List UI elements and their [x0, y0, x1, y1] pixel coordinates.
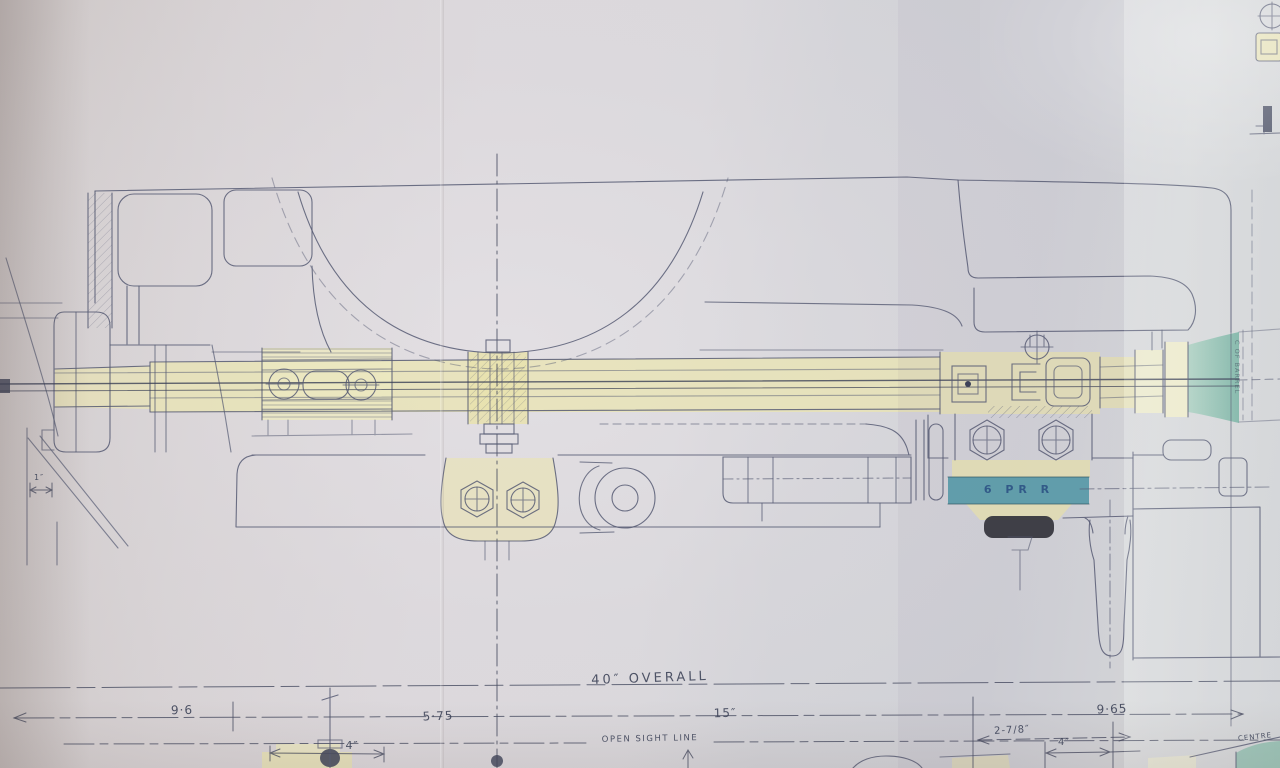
breech-hex-bolts	[970, 420, 1073, 460]
bottom-right-brass-1	[952, 755, 1010, 768]
barrel-step-1	[1100, 357, 1135, 408]
dim-4in-left-label: 4″	[345, 740, 358, 751]
dim-1in-label: 1″	[34, 474, 44, 482]
breech-hatch-strip	[988, 406, 1092, 418]
dim-seg3-label: 15″	[714, 707, 737, 719]
blueprint-photo: 40″ OVERALL 9·6 5·75 15″ 9·65 OPEN SIGHT…	[0, 0, 1280, 768]
dim-seg4-label: 9·65	[1096, 702, 1127, 715]
dim-4in-right-label: 4″	[1058, 738, 1070, 748]
dim-overall-label: 40″ OVERALL	[591, 670, 709, 687]
dim-seg2-label: 5·75	[422, 709, 453, 722]
dimension-lines	[0, 483, 1280, 768]
left-column-hatch	[88, 193, 112, 328]
pedestal-brass-band	[952, 460, 1090, 477]
blueprint-drawing	[0, 0, 1280, 768]
trunnion-bracket-fill	[441, 458, 558, 541]
top-profile	[95, 177, 1231, 332]
colour-washes	[0, 33, 1280, 768]
dim-2-78-label: 2-7/8″	[994, 725, 1030, 737]
dim-seg1-label: 9·6	[171, 704, 193, 716]
barrel-axis-note-label: C OF BARREL	[1234, 340, 1241, 394]
lifting-eye	[595, 468, 655, 528]
bottom-right-brass-2	[1148, 755, 1196, 768]
wheel-arc	[298, 192, 703, 353]
open-sight-line-label: OPEN SIGHT LINE	[602, 734, 699, 744]
barrel-step-2	[1135, 350, 1163, 413]
calibre-band-label: 6 PR R	[984, 484, 1054, 495]
elevating-knob	[984, 516, 1054, 538]
left-arc-curve	[6, 258, 58, 436]
block-hatch-top	[262, 348, 392, 360]
corner-brass-chip	[1256, 33, 1280, 61]
